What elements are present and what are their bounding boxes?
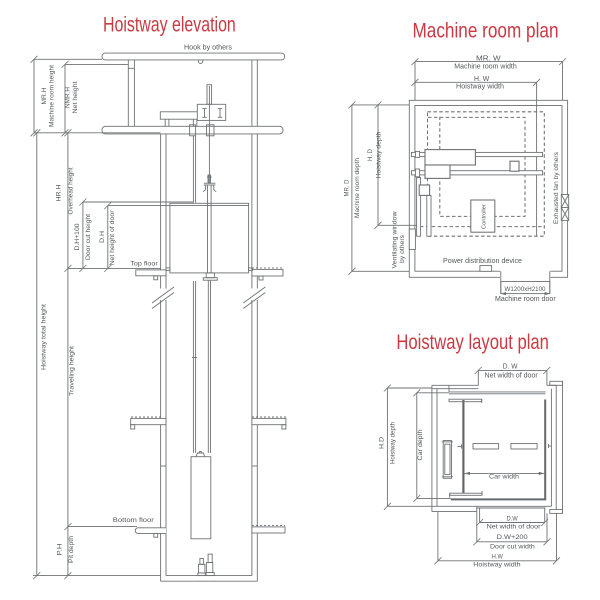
svg-text:Machine room door: Machine room door <box>495 296 556 303</box>
svg-text:Machine room plan: Machine room plan <box>413 20 559 43</box>
svg-text:Hoistway elevation: Hoistway elevation <box>103 14 236 37</box>
svg-text:Bottom floor: Bottom floor <box>113 517 154 524</box>
svg-text:H.W: H.W <box>492 553 503 560</box>
svg-text:Hoistway width: Hoistway width <box>473 562 521 569</box>
svg-text:Hoistway total height: Hoistway total height <box>41 304 48 370</box>
svg-text:H. D: H. D <box>367 149 374 161</box>
svg-text:Top floor: Top floor <box>130 260 158 267</box>
svg-text:Car depth: Car depth <box>417 429 424 461</box>
svg-text:Hoistway layout plan: Hoistway layout plan <box>396 331 549 354</box>
svg-text:P.H: P.H <box>57 543 64 556</box>
svg-text:W1200xH2100: W1200xH2100 <box>505 286 546 293</box>
svg-text:D.H+100: D.H+100 <box>74 223 81 251</box>
svg-text:Ventilating window: Ventilating window <box>391 211 398 268</box>
svg-text:Hoistway depth: Hoistway depth <box>389 422 396 464</box>
svg-text:MR. D: MR. D <box>344 179 351 196</box>
svg-text:Traveling height: Traveling height <box>69 346 76 396</box>
svg-text:Net height: Net height <box>72 81 79 113</box>
svg-text:NMR.H: NMR.H <box>65 87 72 108</box>
svg-text:Net height of door: Net height of door <box>109 211 116 266</box>
svg-text:Overhead height: Overhead height <box>68 167 75 214</box>
svg-text:D.W: D.W <box>507 515 518 522</box>
svg-text:Net width of door: Net width of door <box>487 524 541 531</box>
svg-text:Exhausted fan by others: Exhausted fan by others <box>553 152 560 224</box>
svg-text:Net width of door: Net width of door <box>485 373 539 380</box>
svg-text:H. W: H. W <box>474 76 490 83</box>
svg-text:Machine room depth: Machine room depth <box>354 157 361 218</box>
svg-text:Door cut width: Door cut width <box>490 544 535 551</box>
svg-text:MR.H: MR.H <box>41 87 48 104</box>
svg-text:Car width: Car width <box>489 474 520 481</box>
svg-text:D. W: D. W <box>503 363 518 370</box>
svg-text:D.H: D.H <box>99 231 106 243</box>
svg-text:HR.H: HR.H <box>56 184 63 201</box>
svg-text:Hoistway width: Hoistway width <box>456 84 504 91</box>
svg-text:Hoistway depth: Hoistway depth <box>376 131 383 179</box>
svg-text:Hook by others: Hook by others <box>184 45 232 52</box>
svg-text:Machine room width: Machine room width <box>454 63 517 70</box>
svg-text:H.D: H.D <box>378 437 385 449</box>
svg-text:Pit depth: Pit depth <box>68 535 75 563</box>
svg-text:MR. W: MR. W <box>476 55 501 62</box>
svg-text:Door cut height: Door cut height <box>85 214 92 260</box>
svg-text:Controller: Controller <box>482 204 488 229</box>
svg-text:by others: by others <box>399 235 406 263</box>
svg-text:Power distribution device: Power distribution device <box>443 258 522 265</box>
svg-text:Machine room height: Machine room height <box>49 65 56 127</box>
svg-text:D.W+200: D.W+200 <box>497 534 529 541</box>
